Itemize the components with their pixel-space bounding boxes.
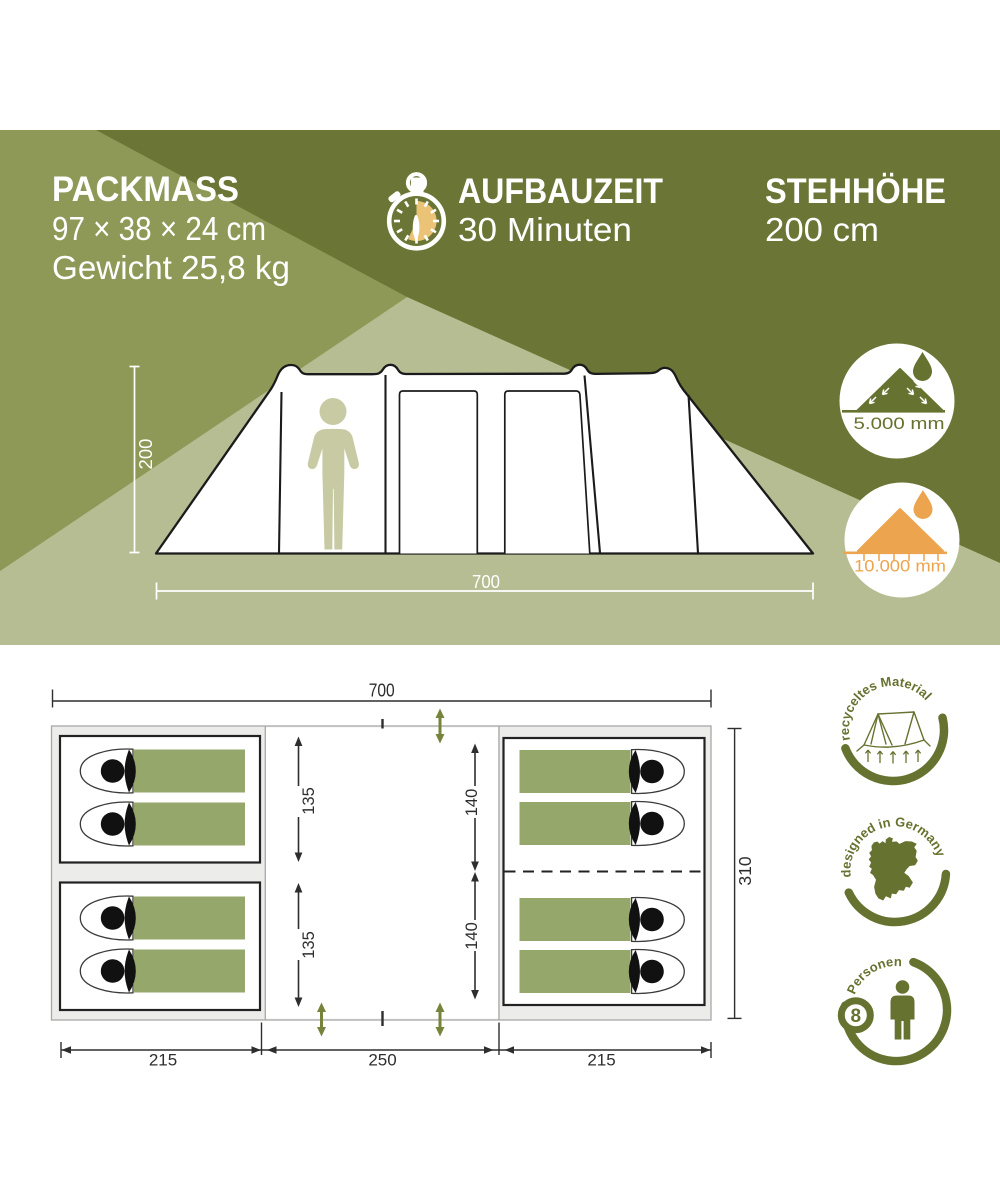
svg-text:140: 140 <box>463 789 481 817</box>
svg-text:310: 310 <box>735 856 755 885</box>
svg-text:135: 135 <box>300 931 318 959</box>
svg-text:200 cm: 200 cm <box>765 211 879 248</box>
svg-text:Gewicht 25,8 kg: Gewicht 25,8 kg <box>52 249 290 286</box>
svg-text:8: 8 <box>851 1006 862 1027</box>
svg-text:250: 250 <box>368 1051 396 1070</box>
svg-text:10.000 mm: 10.000 mm <box>854 558 946 576</box>
svg-text:135: 135 <box>300 787 318 815</box>
svg-text:5.000 mm: 5.000 mm <box>854 415 945 433</box>
svg-text:215: 215 <box>587 1051 615 1070</box>
svg-text:140: 140 <box>463 922 481 950</box>
svg-text:700: 700 <box>472 571 500 592</box>
svg-text:30 Minuten: 30 Minuten <box>458 211 632 248</box>
svg-text:AUFBAUZEIT: AUFBAUZEIT <box>458 172 663 211</box>
svg-text:200: 200 <box>135 439 156 470</box>
svg-text:215: 215 <box>149 1051 177 1070</box>
svg-text:97 × 38 × 24 cm: 97 × 38 × 24 cm <box>52 210 266 247</box>
svg-text:PACKMASS: PACKMASS <box>52 170 239 209</box>
svg-text:700: 700 <box>369 681 395 701</box>
svg-text:STEHHÖHE: STEHHÖHE <box>765 172 946 211</box>
svg-text:Personen: Personen <box>844 954 903 996</box>
